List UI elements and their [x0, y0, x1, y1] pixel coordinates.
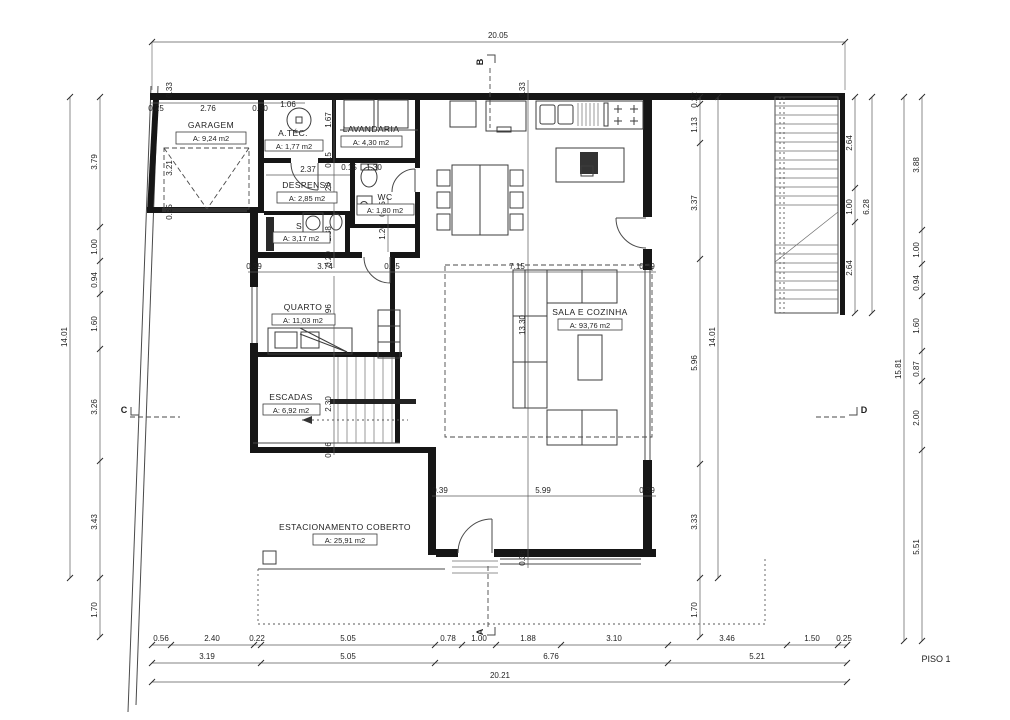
area-label-escadas: A: 6,92 m2 [273, 406, 309, 415]
svg-text:2.64: 2.64 [845, 135, 854, 151]
dim-far-right-overall: 15.81 [894, 358, 903, 379]
area-label-quarto: A: 11,03 m2 [283, 316, 323, 325]
room-label-lavandaria: LAVANDARIA [343, 124, 400, 134]
svg-text:0.39: 0.39 [432, 486, 448, 495]
stairs-exterior [775, 97, 838, 313]
room-label-wc: WC [378, 192, 393, 202]
room-labels: GARAGEM A: 9,24 m2 A.TÉC. A: 1,77 m2 LAV… [176, 120, 628, 545]
svg-text:3.43: 3.43 [90, 514, 99, 530]
furniture-dining [437, 165, 523, 235]
svg-text:3.79: 3.79 [90, 154, 99, 170]
svg-text:3.88: 3.88 [912, 157, 921, 173]
svg-text:1.70: 1.70 [90, 602, 99, 618]
svg-text:5.96: 5.96 [690, 355, 699, 371]
area-label-atec: A: 1,77 m2 [276, 142, 312, 151]
svg-text:1.00: 1.00 [90, 239, 99, 255]
room-label-s: S [296, 221, 302, 231]
void-outline [445, 265, 652, 437]
svg-text:0.39: 0.39 [639, 262, 655, 271]
svg-text:5.05: 5.05 [340, 652, 356, 661]
svg-text:1.60: 1.60 [90, 316, 99, 332]
svg-text:2.76: 2.76 [200, 104, 216, 113]
svg-text:0.78: 0.78 [440, 634, 456, 643]
svg-text:3.46: 3.46 [719, 634, 735, 643]
svg-text:0.30: 0.30 [252, 104, 268, 113]
svg-text:3.19: 3.19 [199, 652, 215, 661]
svg-text:0.94: 0.94 [912, 275, 921, 291]
floor-title: PISO 1 [921, 654, 950, 664]
svg-text:0.20: 0.20 [324, 251, 333, 267]
dimension-labels-vertical: 3.79 1.00 0.94 1.60 3.26 3.43 1.70 14.01… [60, 82, 921, 618]
svg-text:0.25: 0.25 [148, 104, 164, 113]
dim-right-overall: 14.01 [708, 326, 717, 347]
svg-text:1.00: 1.00 [845, 199, 854, 215]
room-label-quarto: QUARTO [284, 302, 322, 312]
svg-text:1.70: 1.70 [690, 602, 699, 618]
svg-text:1.88: 1.88 [520, 634, 536, 643]
svg-text:1.67: 1.67 [324, 112, 333, 128]
dim-bottom-overall: 20.21 [490, 671, 511, 680]
svg-text:1.60: 1.60 [912, 318, 921, 334]
garage-door-swing [164, 148, 249, 209]
carport-elements [258, 551, 445, 569]
dim-left-overall: 14.01 [60, 326, 69, 347]
svg-text:1.50: 1.50 [804, 634, 820, 643]
svg-text:1.00: 1.00 [912, 242, 921, 258]
svg-text:1.30: 1.30 [366, 163, 382, 172]
room-label-garagem: GARAGEM [188, 120, 234, 130]
area-label-garagem: A: 9,24 m2 [193, 134, 229, 143]
svg-text:0.25: 0.25 [165, 204, 174, 220]
svg-text:0.94: 0.94 [90, 272, 99, 288]
area-label-estacionamento: A: 25,91 m2 [325, 536, 365, 545]
svg-text:0.33: 0.33 [518, 82, 527, 98]
svg-text:0.36: 0.36 [324, 442, 333, 458]
svg-text:0.15: 0.15 [384, 262, 400, 271]
svg-text:5.99: 5.99 [535, 486, 551, 495]
doors [291, 163, 646, 573]
furniture-living [513, 270, 617, 445]
room-label-estacionamento: ESTACIONAMENTO COBERTO [279, 522, 411, 532]
area-label-lavandaria: A: 4,30 m2 [353, 138, 389, 147]
area-label-s: A: 3,17 m2 [283, 234, 319, 243]
section-markers: B A C D [121, 58, 868, 635]
svg-text:1.20: 1.20 [378, 224, 387, 240]
svg-text:3.26: 3.26 [90, 399, 99, 415]
svg-text:3.21: 3.21 [165, 160, 174, 176]
svg-text:1.06: 1.06 [280, 100, 296, 109]
windows [162, 130, 650, 564]
svg-text:0.15: 0.15 [324, 152, 333, 168]
patio-outline [258, 557, 765, 624]
room-label-atec: A.TÉC. [278, 128, 308, 138]
svg-text:5.21: 5.21 [749, 652, 765, 661]
svg-text:6.76: 6.76 [543, 652, 559, 661]
floor-plan-sheet: 20.05 0.25 2.76 0.30 1.06 0.39 3.74 0.15… [0, 0, 1010, 720]
svg-text:3.10: 3.10 [606, 634, 622, 643]
svg-text:2.30: 2.30 [324, 396, 333, 412]
svg-text:0.22: 0.22 [249, 634, 265, 643]
svg-text:0.39: 0.39 [639, 486, 655, 495]
svg-text:0.36: 0.36 [518, 550, 527, 566]
room-label-sala: SALA E COZINHA [552, 307, 628, 317]
svg-text:0.39: 0.39 [246, 262, 262, 271]
area-label-wc: A: 1,80 m2 [367, 206, 403, 215]
svg-text:2.64: 2.64 [845, 260, 854, 276]
dim-top-overall: 20.05 [488, 31, 509, 40]
section-marker-d: D [861, 405, 868, 415]
section-marker-a: A [475, 628, 485, 635]
dim-despensa-width: 2.37 [300, 165, 316, 174]
svg-text:0.56: 0.56 [153, 634, 169, 643]
furniture-kitchen [450, 101, 643, 182]
svg-text:5.51: 5.51 [912, 539, 921, 555]
svg-text:7.15: 7.15 [509, 262, 525, 271]
svg-text:0.25: 0.25 [836, 634, 852, 643]
room-label-despensa: DESPENSA [282, 180, 332, 190]
svg-text:0.15: 0.15 [341, 163, 357, 172]
svg-text:0.22: 0.22 [690, 92, 699, 108]
floor-plan-drawing: 20.05 0.25 2.76 0.30 1.06 0.39 3.74 0.15… [0, 0, 1010, 720]
svg-text:13.30: 13.30 [518, 314, 527, 335]
svg-text:0.33: 0.33 [165, 82, 174, 98]
section-marker-c: C [121, 405, 128, 415]
section-marker-b: B [475, 58, 485, 65]
area-label-despensa: A: 2,85 m2 [289, 194, 325, 203]
svg-text:1.13: 1.13 [690, 117, 699, 133]
room-label-escadas: ESCADAS [269, 392, 312, 402]
svg-text:3.33: 3.33 [690, 514, 699, 530]
svg-text:0.87: 0.87 [912, 361, 921, 377]
svg-text:2.40: 2.40 [204, 634, 220, 643]
area-label-sala: A: 93,76 m2 [570, 321, 610, 330]
svg-text:2.00: 2.00 [912, 410, 921, 426]
dim-stair-overall: 6.28 [862, 199, 871, 215]
svg-text:3.37: 3.37 [690, 195, 699, 211]
svg-text:5.05: 5.05 [340, 634, 356, 643]
